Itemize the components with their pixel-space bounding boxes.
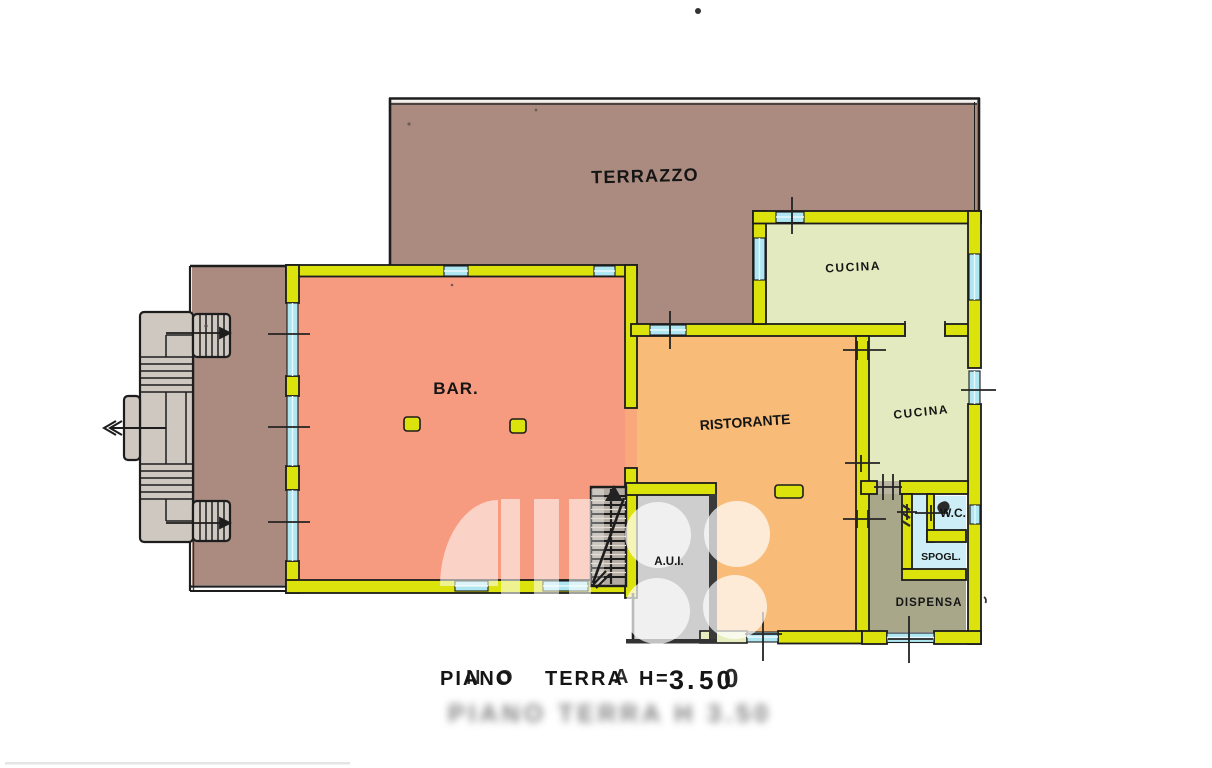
svg-text:=: = [656,668,670,690]
svg-text:TERRA: TERRA [545,668,624,690]
svg-text:TERRAZZO: TERRAZZO [591,165,699,188]
svg-text:W.C.: W.C. [940,506,966,520]
svg-text:SPOGL.: SPOGL. [921,551,961,563]
svg-text:DISPENSA: DISPENSA [896,597,963,609]
svg-text:PIANO TERRA H 3.50: PIANO TERRA H 3.50 [448,700,772,728]
svg-text:BAR.: BAR. [433,379,479,398]
svg-text:50: 50 [699,665,734,695]
svg-text:PIANO: PIANO [440,668,513,690]
svg-text:A.U.I.: A.U.I. [654,556,683,568]
svg-text:H: H [639,668,655,690]
svg-text:CUCINA: CUCINA [825,259,881,276]
svg-text:3.: 3. [669,665,698,695]
